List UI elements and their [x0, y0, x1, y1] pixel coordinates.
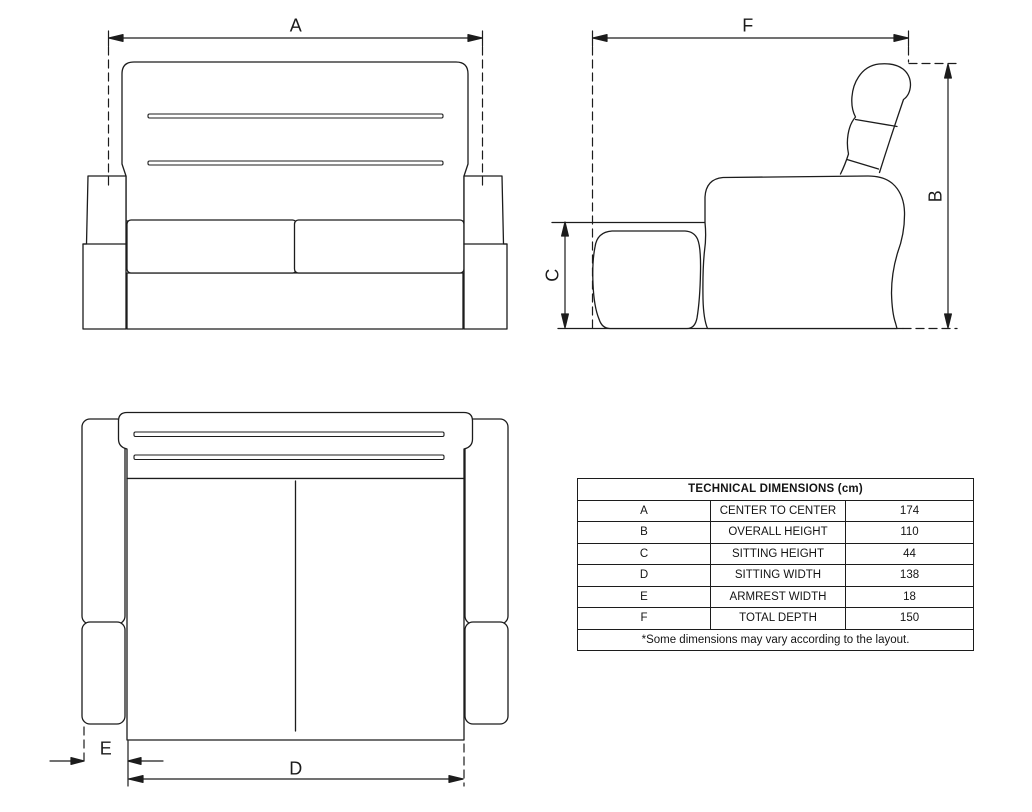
table-row: D SITTING WIDTH 138	[578, 565, 974, 587]
front-armrest-right	[464, 176, 507, 329]
technical-dimensions-table: TECHNICAL DIMENSIONS (cm) A CENTER TO CE…	[577, 478, 974, 651]
table-footnote: *Some dimensions may vary according to t…	[578, 629, 974, 651]
side-backrest	[841, 64, 911, 174]
dim-value-cell: 110	[846, 522, 974, 544]
dim-name-cell: ARMREST WIDTH	[711, 586, 846, 608]
dim-letter-cell: B	[578, 522, 711, 544]
dim-value-cell: 18	[846, 586, 974, 608]
dim-value-cell: 150	[846, 608, 974, 630]
dim-name-cell: SITTING HEIGHT	[711, 543, 846, 565]
front-base	[127, 273, 463, 329]
side-body	[703, 176, 905, 329]
front-seat-cushion-right	[295, 220, 465, 273]
front-view	[83, 31, 507, 329]
table-row: F TOTAL DEPTH 150	[578, 608, 974, 630]
front-seat-cushion-left	[127, 220, 297, 273]
table-title-row: TECHNICAL DIMENSIONS (cm)	[578, 479, 974, 501]
table-row: B OVERALL HEIGHT 110	[578, 522, 974, 544]
table-row: C SITTING HEIGHT 44	[578, 543, 974, 565]
dim-label-c: C	[543, 268, 564, 282]
dim-name-cell: OVERALL HEIGHT	[711, 522, 846, 544]
top-backrest	[119, 413, 473, 479]
sofa-technical-drawing	[0, 0, 1032, 812]
dim-letter-cell: D	[578, 565, 711, 587]
dim-label-f: F	[742, 16, 754, 37]
dim-label-d: D	[289, 759, 303, 780]
dim-value-cell: 174	[846, 500, 974, 522]
top-armrest-right	[465, 419, 508, 724]
side-view	[552, 31, 957, 329]
dim-name-cell: CENTER TO CENTER	[711, 500, 846, 522]
front-stitch-line-1	[148, 114, 443, 118]
table-footnote-row: *Some dimensions may vary according to t…	[578, 629, 974, 651]
front-armrest-left	[83, 176, 126, 329]
front-stitch-line-2	[148, 161, 443, 165]
top-armrest-left	[82, 419, 125, 724]
dim-name-cell: TOTAL DEPTH	[711, 608, 846, 630]
side-seat-cushion	[593, 231, 701, 329]
table-title: TECHNICAL DIMENSIONS (cm)	[578, 479, 974, 501]
front-backrest	[122, 62, 468, 221]
table-row: A CENTER TO CENTER 174	[578, 500, 974, 522]
dim-label-b: B	[926, 190, 947, 203]
dim-letter-cell: F	[578, 608, 711, 630]
dim-letter-cell: C	[578, 543, 711, 565]
dim-letter-cell: A	[578, 500, 711, 522]
table-row: E ARMREST WIDTH 18	[578, 586, 974, 608]
dim-name-cell: SITTING WIDTH	[711, 565, 846, 587]
top-stitch-line-2	[134, 455, 444, 460]
technical-drawing-page: A F B C E D TECHNICAL DIMENSIONS (cm) A …	[0, 0, 1032, 812]
dim-label-e: E	[100, 739, 113, 760]
top-stitch-line-1	[134, 432, 444, 437]
dim-value-cell: 44	[846, 543, 974, 565]
dim-label-a: A	[290, 16, 303, 37]
top-view	[50, 413, 508, 787]
dim-value-cell: 138	[846, 565, 974, 587]
dim-letter-cell: E	[578, 586, 711, 608]
